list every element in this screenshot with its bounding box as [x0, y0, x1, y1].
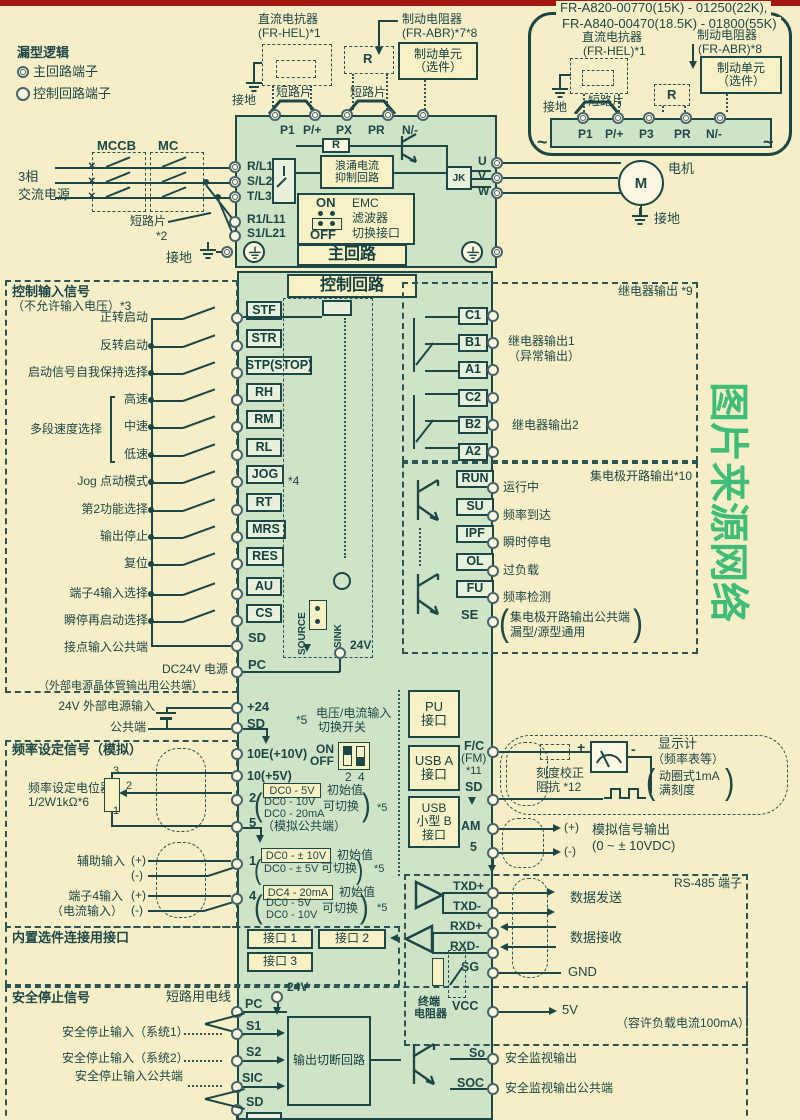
terminal-RM [231, 421, 243, 433]
terminal-SL2 [229, 176, 241, 188]
terminal-AM [487, 823, 499, 835]
shield-cable [156, 842, 206, 918]
terminal-RUN [487, 482, 499, 494]
row-label: 瞬停再启动选择 [5, 614, 148, 628]
terminal-RXDm [487, 947, 499, 959]
terminal-So [487, 1053, 499, 1065]
internal-24v [334, 647, 346, 659]
emc-jumper [312, 218, 342, 230]
terminal-MRS [231, 531, 243, 543]
safety-24v [271, 991, 283, 1003]
termbox-CS: CS [246, 604, 282, 623]
receiver-amp-icon [402, 922, 436, 956]
jk-box: JK [446, 166, 472, 190]
terminal-SG [487, 967, 499, 979]
watermark-text: 图片来源网络 [706, 384, 750, 624]
arrow-icon [390, 934, 398, 942]
breaker-x-icon: × [88, 159, 96, 174]
earth-circle-icon [461, 241, 483, 263]
resistor-r: R [363, 52, 372, 67]
arrow-icon [277, 1082, 285, 1090]
arrow-icon [553, 848, 561, 856]
arrow-icon [553, 824, 561, 832]
termbox-STR: STR [246, 329, 282, 348]
row-label: 端子4输入选择 [5, 587, 148, 601]
row-label: 启动信号自我保持选择 [5, 366, 148, 380]
transistor-icon [392, 132, 424, 164]
row-label: 输出停止 [5, 530, 148, 544]
output-cutoff-box: 输出切断回路 [287, 1016, 371, 1106]
terminal-RH [231, 394, 243, 406]
wave-icon: ~ [537, 132, 548, 153]
termbox-JOG: JOG [246, 465, 284, 484]
main-circuit-title: 主回路 [297, 244, 407, 266]
terminating-resistor [432, 958, 444, 986]
termbox-RL: RL [246, 438, 282, 457]
terminal-SD2 [231, 722, 243, 734]
main-terminal-icon [17, 66, 29, 78]
terminal-SOC [487, 1083, 499, 1095]
termbox-AU: AU [246, 577, 282, 596]
termbox-B2: B2 [458, 416, 488, 434]
legend-title: 漏型逻辑 [17, 46, 69, 61]
terminal-R1L11 [229, 216, 241, 228]
terminal-STR [231, 340, 243, 352]
brake-resistor-label: 制动电阻器 [402, 13, 462, 27]
terminal-A2 [487, 446, 499, 458]
termbox-RT: RT [246, 493, 282, 512]
terminal-P-plus [309, 109, 321, 121]
terminal-TXDm [487, 907, 499, 919]
termbox-A1: A1 [458, 361, 488, 379]
terminal-P1 [269, 109, 281, 121]
arrow-icon [277, 1056, 285, 1064]
row-label: 正转启动 [5, 311, 148, 325]
terminal-C2 [487, 392, 499, 404]
pu-port: PU接口 [408, 690, 460, 738]
termbox-B1: B1 [458, 334, 488, 352]
terminal-plus24 [231, 702, 243, 714]
terminal-C1 [487, 310, 499, 322]
usb-a-port: USB A接口 [408, 745, 460, 791]
arrow-icon [256, 835, 264, 843]
terminal-RXDp [487, 927, 499, 939]
dc-reactor-model: (FR-HEL)*1 [258, 27, 321, 41]
motor-label: 电机 [668, 162, 694, 177]
shield-cable [156, 748, 206, 832]
arrow-icon [468, 797, 476, 805]
resistor-r-box: R [322, 138, 350, 153]
row-label: 高速 [5, 393, 148, 407]
arrow-icon [689, 61, 697, 69]
row-label: Jog 点动模式 [5, 475, 148, 489]
inverter-wiring-diagram: 漏型逻辑 主回路端子 控制回路端子 直流电抗器 (FR-HEL)*1 接地 制动… [0, 0, 800, 1120]
ground-icon [200, 249, 216, 261]
ground-icon [632, 215, 648, 227]
terminal-STP [231, 367, 243, 379]
terminal-A1 [487, 364, 499, 376]
arrow-icon [547, 908, 555, 916]
transistor-icon [404, 472, 452, 528]
terminal-SU [487, 510, 499, 522]
driver-amp-icon [412, 878, 446, 912]
source-sink-jumper [309, 600, 327, 630]
option-port-1: 接口 1 [247, 929, 313, 949]
terminal-TL3 [229, 191, 241, 203]
control-terminal-icon [16, 87, 30, 101]
motor-circle: M [618, 160, 664, 206]
surge-suppression-box: 浪涌电流抑制回路 [320, 155, 394, 189]
terminal-OL [487, 565, 499, 577]
terminal-IPF [487, 537, 499, 549]
arrow-icon [277, 1029, 285, 1037]
multi-speed-label: 多段速度选择 [30, 423, 102, 437]
terminal-V [491, 172, 503, 184]
shield-cable [502, 818, 544, 868]
arrow-icon [303, 644, 311, 652]
row-label: 低速 [5, 448, 148, 462]
terminal-U [491, 157, 503, 169]
terminal-S1L21 [229, 230, 241, 242]
terminal-SD [231, 640, 243, 652]
optocoupler-icon [322, 300, 352, 316]
legend-control-terminal: 控制回路端子 [33, 87, 111, 102]
arrow-icon [547, 888, 555, 896]
calibration-resistor [540, 744, 570, 760]
terminal-10E [231, 748, 243, 760]
terminal-W [491, 187, 503, 199]
terminal-5 [231, 821, 243, 833]
terminal-PR [382, 109, 394, 121]
inset-title-1: FR-A820-00770(15K) - 01250(22K), [556, 1, 771, 16]
arrow-icon [500, 923, 508, 931]
terminal-SE [487, 616, 499, 628]
wave-icon: ~ [763, 132, 774, 153]
terminal-2 [231, 794, 243, 806]
relay-output-section [402, 282, 698, 462]
terminal-PC [231, 666, 243, 678]
clipped-terminal-box [246, 1112, 282, 1120]
shield-cable [512, 878, 548, 978]
transistor-icon [400, 1036, 448, 1092]
terminal-CS [231, 615, 243, 627]
terminal-AU [231, 588, 243, 600]
earth-circle-icon [243, 241, 265, 263]
breaker-x-icon: × [88, 174, 96, 189]
ground-label: 接地 [232, 94, 256, 108]
sd-common-label: 接点输入公共端 [5, 641, 148, 655]
terminal-B2 [487, 419, 499, 431]
terminal-TXDp [487, 887, 499, 899]
terminal-FU [487, 592, 499, 604]
terminal-4 [231, 893, 243, 905]
optocoupler-icon [333, 572, 351, 590]
row-label: 第2功能选择 [5, 503, 148, 517]
terminal-RT [231, 504, 243, 516]
termbox-RM: RM [246, 410, 282, 429]
terminal-RES [231, 558, 243, 570]
arrow-icon [500, 943, 508, 951]
sink-label: SINK [333, 624, 345, 648]
dc-reactor-label: 直流电抗器 [258, 13, 318, 27]
terminal-10 [231, 770, 243, 782]
terminal-RL1 [229, 161, 241, 173]
terminal-5b [487, 847, 499, 859]
option-port-2: 接口 2 [318, 929, 386, 949]
row-label: 反转启动 [5, 339, 148, 353]
transistor-icon [404, 566, 452, 622]
termbox-RH: RH [246, 383, 282, 402]
usb-mini-b-port: USB小型 B接口 [408, 796, 460, 848]
arrow-icon [488, 865, 496, 873]
brake-resistor-model: (FR-ABR)*7*8 [402, 27, 477, 41]
terminal-S1 [231, 1028, 243, 1040]
legend-main-terminal: 主回路端子 [33, 65, 98, 80]
brake-unit-box: 制动单元（选件） [398, 42, 478, 80]
breaker-x-icon: × [88, 189, 96, 204]
terminal-B1 [487, 337, 499, 349]
terminal-N-minus [417, 109, 429, 121]
dc-reactor-coil [276, 60, 316, 78]
terminal-STF [231, 312, 243, 324]
terminal-PX [341, 109, 353, 121]
row-label: 复位 [5, 557, 148, 571]
terminal-SD3 [487, 794, 499, 806]
input-circuit-box [283, 298, 373, 658]
termbox-C2: C2 [458, 389, 488, 407]
option-port-3: 接口 3 [247, 952, 313, 972]
terminal-FC-FM [487, 746, 499, 758]
terminal-1 [231, 858, 243, 870]
terminal-S2 [231, 1055, 243, 1067]
terminal-JOG [231, 476, 243, 488]
termbox-A2: A2 [458, 443, 488, 461]
terminal-RL [231, 449, 243, 461]
arrow-icon [262, 736, 270, 744]
ground-icon [552, 88, 568, 100]
control-circuit-title: 控制回路 [287, 274, 417, 298]
termbox-RES: RES [246, 547, 284, 566]
termbox-C1: C1 [458, 307, 488, 325]
termbox-MRS: MRS [246, 520, 286, 539]
inset-brake-unit-box: 制动单元（选件） [700, 56, 782, 94]
square-wave-icon [602, 785, 648, 801]
